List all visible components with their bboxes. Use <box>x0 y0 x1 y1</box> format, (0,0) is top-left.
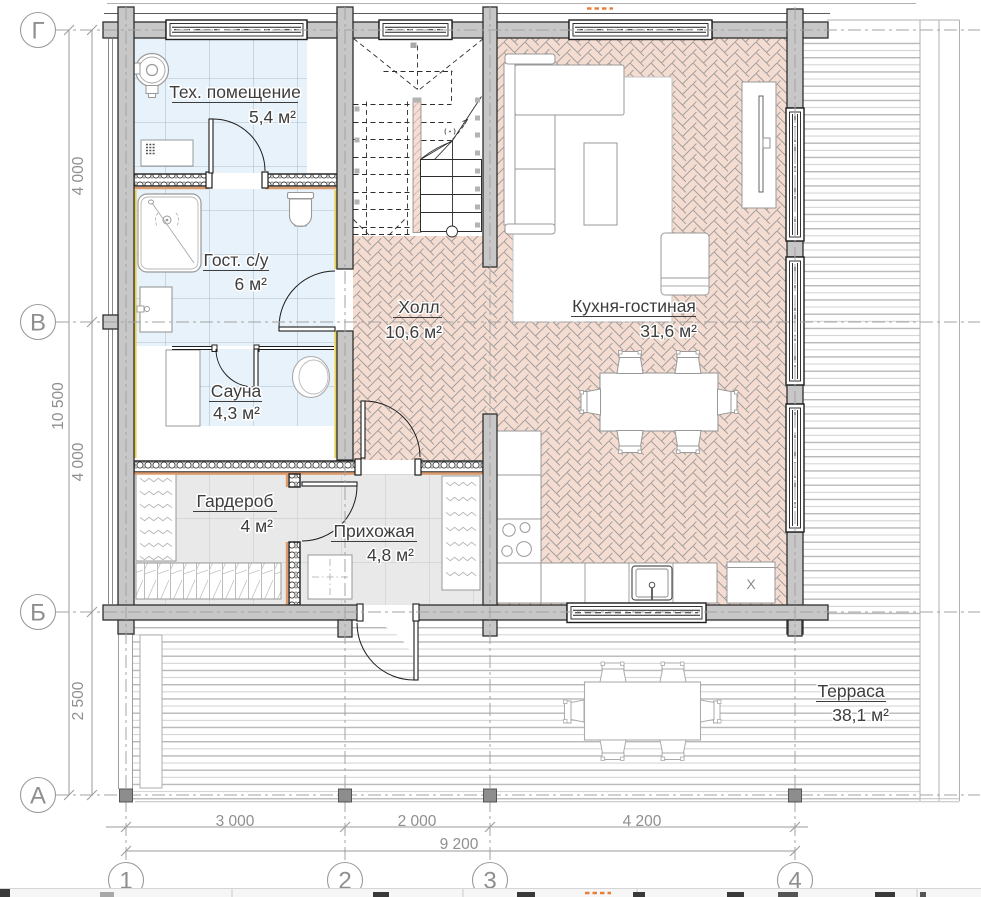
svg-text:В: В <box>30 310 46 337</box>
svg-text:4 000: 4 000 <box>70 156 87 195</box>
svg-text:Гардероб: Гардероб <box>197 491 274 511</box>
svg-text:Прихожая: Прихожая <box>333 521 414 541</box>
svg-text:3 000: 3 000 <box>216 813 255 830</box>
svg-text:5,4 м²: 5,4 м² <box>249 107 296 127</box>
svg-text:Г: Г <box>32 18 45 45</box>
svg-text:2 500: 2 500 <box>70 681 87 720</box>
svg-text:10 500: 10 500 <box>50 382 67 430</box>
svg-text:2 000: 2 000 <box>398 813 437 830</box>
svg-text:4,8 м²: 4,8 м² <box>367 545 414 565</box>
svg-text:4 000: 4 000 <box>70 442 87 481</box>
svg-text:Гост. с/у: Гост. с/у <box>204 250 269 270</box>
svg-text:4 200: 4 200 <box>623 813 662 830</box>
svg-text:Сауна: Сауна <box>211 381 262 401</box>
svg-text:Тех. помещение: Тех. помещение <box>169 82 301 102</box>
svg-text:38,1 м²: 38,1 м² <box>832 705 889 725</box>
svg-text:Б: Б <box>30 600 46 627</box>
svg-text:Кухня-гостиная: Кухня-гостиная <box>572 296 696 316</box>
svg-text:4,3 м²: 4,3 м² <box>213 403 260 423</box>
svg-text:Терраса: Терраса <box>817 681 884 701</box>
svg-text:А: А <box>30 783 46 810</box>
svg-text:6 м²: 6 м² <box>235 274 268 294</box>
svg-text:10,6 м²: 10,6 м² <box>385 322 442 342</box>
svg-text:Холл: Холл <box>398 297 439 317</box>
svg-text:X: X <box>746 576 756 592</box>
svg-text:9 200: 9 200 <box>440 836 479 853</box>
svg-text:31,6 м²: 31,6 м² <box>640 321 697 341</box>
svg-text:4 м²: 4 м² <box>241 516 274 536</box>
